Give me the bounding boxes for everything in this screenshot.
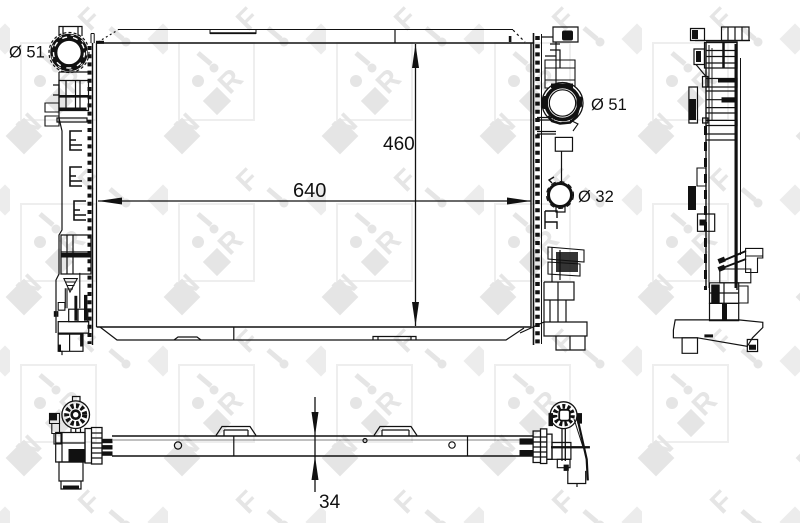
svg-text:460: 460 bbox=[383, 134, 415, 155]
svg-text:34: 34 bbox=[319, 492, 341, 513]
svg-text:Ø 51: Ø 51 bbox=[591, 96, 627, 114]
svg-text:Ø 51: Ø 51 bbox=[9, 44, 45, 62]
svg-text:640: 640 bbox=[293, 180, 326, 202]
svg-text:Ø 32: Ø 32 bbox=[578, 188, 614, 206]
